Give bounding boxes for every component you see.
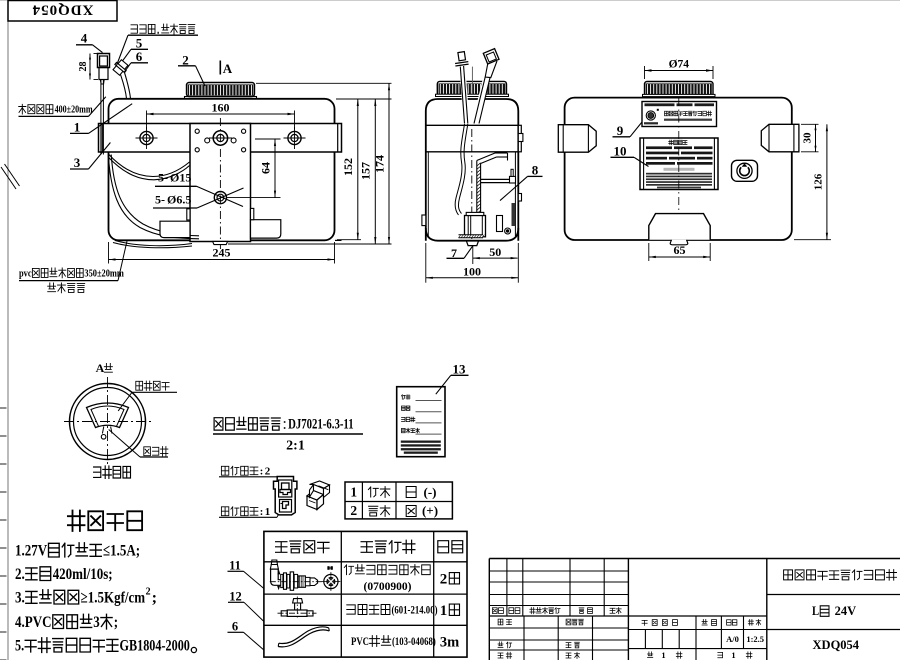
svg-text:≥1.5Kgf/cm: ≥1.5Kgf/cm [81,587,146,606]
svg-text:XDQ054: XDQ054 [813,638,860,652]
svg-text:2: 2 [350,503,357,518]
svg-text:11: 11 [229,559,241,573]
svg-text:174: 174 [372,155,386,173]
svg-text:(601-214.00): (601-214.00) [392,602,438,616]
svg-text:6: 6 [136,49,143,64]
svg-text:350±20mm: 350±20mm [84,267,124,279]
svg-text:(0700900): (0700900) [364,581,412,593]
svg-text:3: 3 [93,612,100,631]
svg-text:1: 1 [350,485,357,500]
svg-text:2: 2 [440,572,448,588]
svg-text:28: 28 [78,62,89,72]
svg-text:(-): (-) [424,485,437,500]
svg-text:50: 50 [489,245,501,259]
svg-text:GB1804-2000: GB1804-2000 [120,635,190,654]
svg-text:2.: 2. [15,564,25,583]
svg-text:4.PVC: 4.PVC [15,612,52,631]
svg-text::: : [260,467,264,478]
svg-text:A: A [96,361,105,375]
svg-text:PVC: PVC [351,634,369,648]
svg-text:400±20mm: 400±20mm [55,104,93,116]
svg-text:8: 8 [532,163,539,178]
svg-text:Ø74: Ø74 [669,59,690,71]
svg-text:1:2.5: 1:2.5 [746,634,764,644]
svg-text:4: 4 [81,31,88,46]
svg-text:24V: 24V [835,604,857,618]
svg-text:3m: 3m [440,635,459,651]
svg-text:2: 2 [265,466,271,478]
svg-text:XDQ054: XDQ054 [32,2,94,18]
svg-text:;: ; [152,587,157,606]
svg-text:1: 1 [661,650,665,660]
svg-text:2:1: 2:1 [286,439,305,454]
svg-text::: : [260,507,264,518]
svg-text:3.: 3. [15,587,25,606]
svg-text:1: 1 [440,603,448,619]
svg-text:1.27V: 1.27V [15,540,47,559]
svg-text:65: 65 [674,243,686,257]
svg-text:13: 13 [453,362,467,377]
svg-text:160: 160 [212,101,230,115]
svg-text:100: 100 [463,264,481,278]
svg-text:DJ7021-6.3-11: DJ7021-6.3-11 [288,417,354,433]
svg-text:1: 1 [265,506,271,518]
svg-text:A/0: A/0 [726,634,739,644]
svg-text:152: 152 [341,158,355,176]
svg-text:5.: 5. [15,635,24,654]
svg-text:A: A [223,61,233,76]
svg-text:30: 30 [801,132,813,144]
svg-text:(+): (+) [422,503,438,518]
svg-text:126: 126 [812,173,824,190]
svg-text:9: 9 [617,123,624,138]
svg-text:1: 1 [731,650,735,660]
svg-text:6: 6 [232,620,238,634]
svg-text:12: 12 [229,590,242,604]
svg-text:157: 157 [359,162,373,180]
svg-text:3: 3 [74,155,81,170]
svg-text:420ml/10s;: 420ml/10s; [53,564,113,583]
svg-text:1: 1 [74,120,81,135]
svg-text:Ø6.5: Ø6.5 [167,193,191,207]
svg-text:L: L [812,604,819,618]
svg-text:;: ; [114,612,118,631]
svg-text:≤1.5A;: ≤1.5A; [103,540,140,559]
svg-text:5-: 5- [155,193,165,207]
svg-text:pvc: pvc [19,267,32,279]
svg-text:2: 2 [146,587,151,598]
svg-text:(103-04068): (103-04068) [392,634,436,648]
svg-text:245: 245 [213,246,231,260]
svg-text:10: 10 [614,144,627,159]
svg-text:64: 64 [259,162,273,174]
